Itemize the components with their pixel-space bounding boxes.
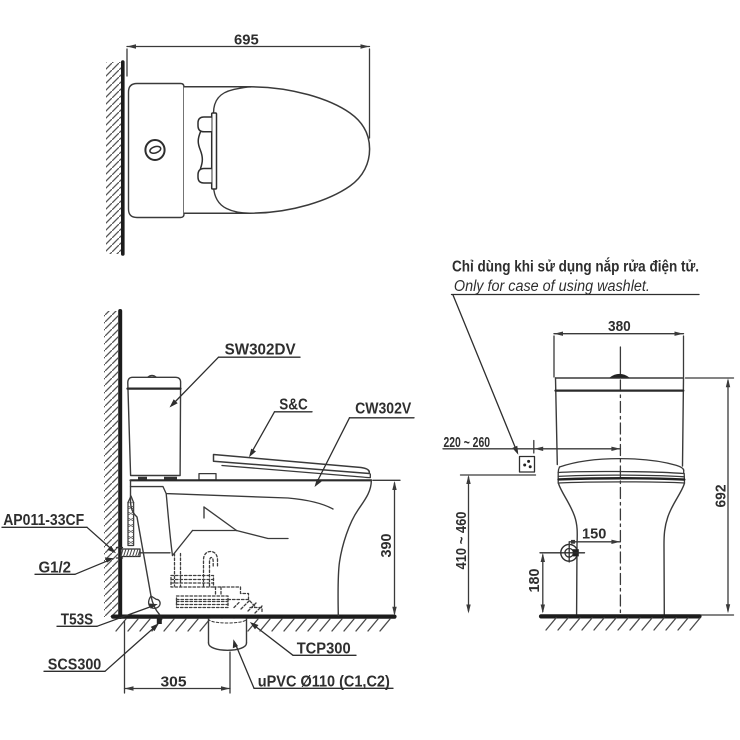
svg-text:AP011-33CF: AP011-33CF — [3, 512, 84, 529]
svg-text:692: 692 — [713, 485, 729, 508]
svg-text:Only for case of using washlet: Only for case of using washlet. — [454, 278, 650, 295]
svg-text:180: 180 — [527, 569, 543, 593]
svg-text:Chỉ dùng khi sử dụng nắp rửa đ: Chỉ dùng khi sử dụng nắp rửa điện tử. — [452, 256, 699, 275]
svg-text:CW302V: CW302V — [355, 401, 411, 418]
svg-text:410 ~ 460: 410 ~ 460 — [454, 512, 470, 570]
svg-text:150: 150 — [582, 526, 606, 542]
svg-text:390: 390 — [379, 534, 395, 558]
svg-text:S&C: S&C — [279, 397, 308, 414]
svg-text:380: 380 — [608, 319, 631, 335]
svg-text:SW302DV: SW302DV — [225, 341, 296, 358]
svg-text:305: 305 — [161, 674, 187, 690]
